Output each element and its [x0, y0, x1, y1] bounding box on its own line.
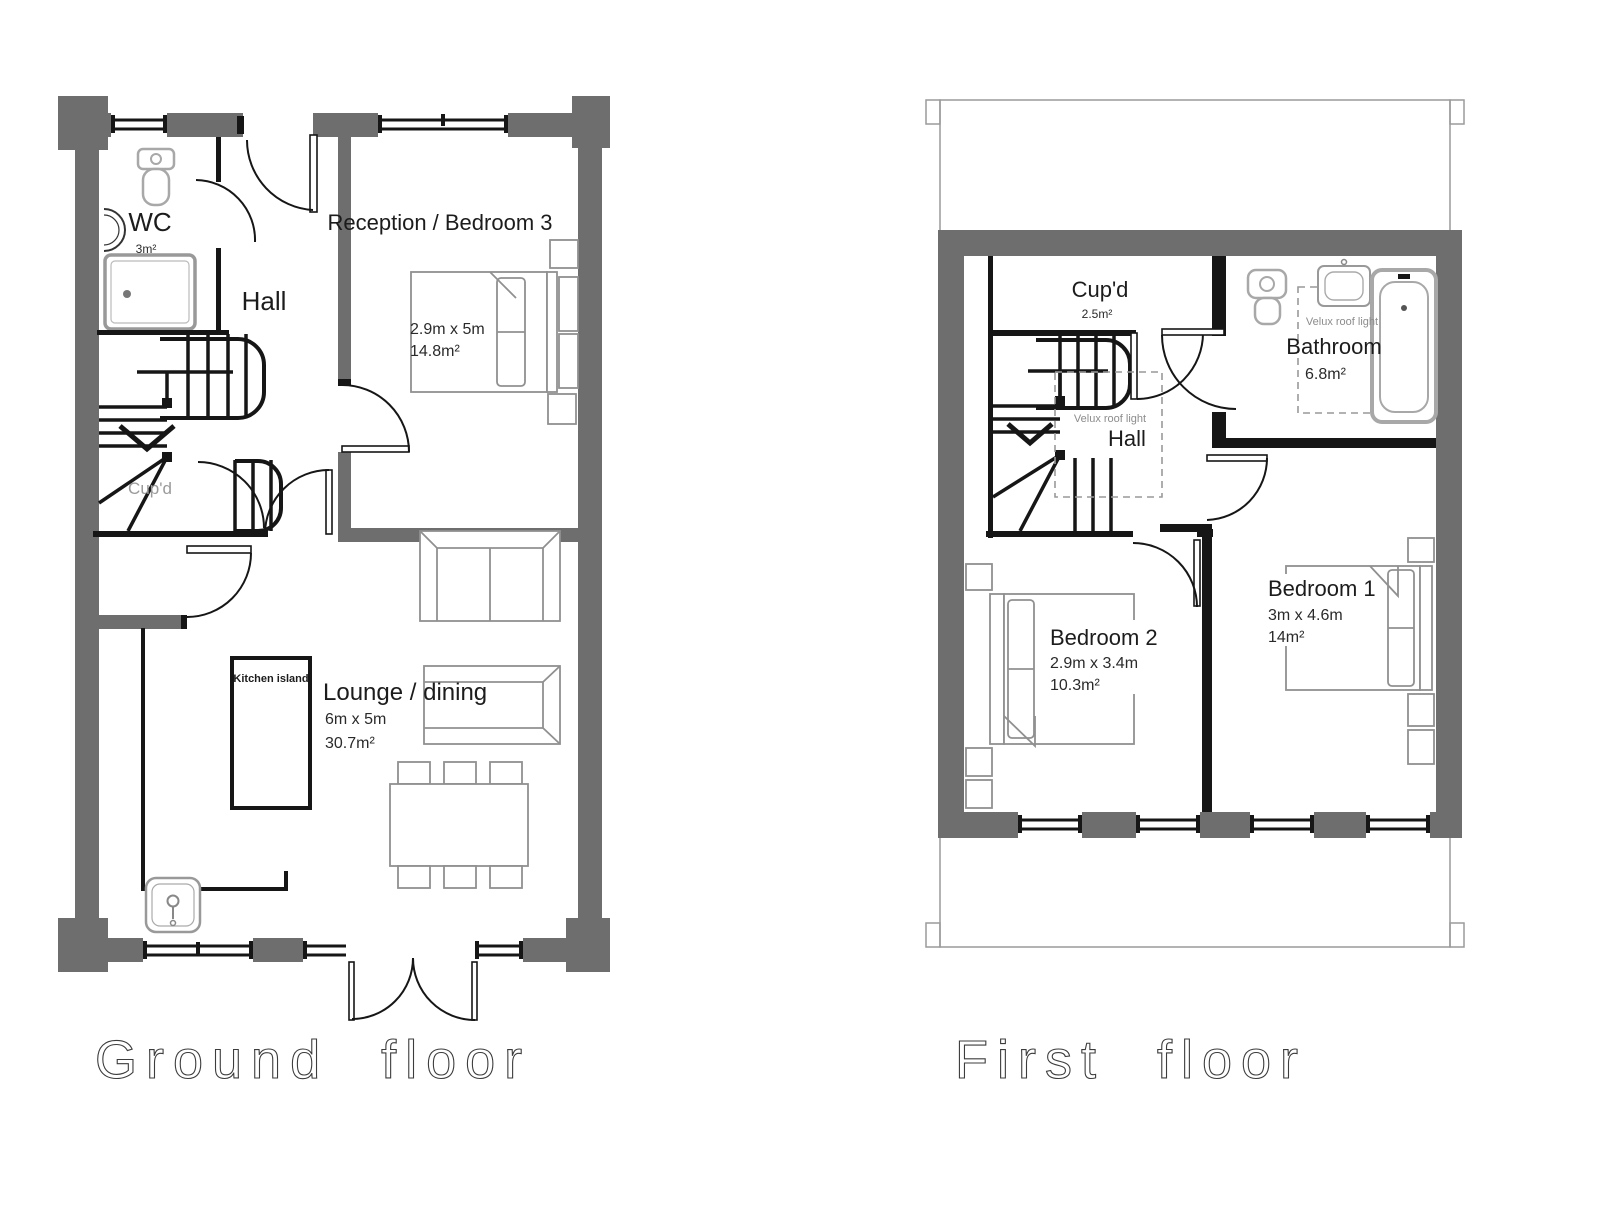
toilet-icon: [1248, 270, 1286, 324]
window: [1250, 810, 1314, 840]
bedroom1-door: [1207, 455, 1267, 520]
window: [1018, 810, 1082, 840]
floorplan-page: WC 3m² Hall Reception / Bedroom 3 2.9m x…: [0, 0, 1609, 1210]
stairs-icon: [93, 330, 281, 537]
wall-pillar: [572, 96, 610, 148]
french-door-opening: [346, 935, 477, 965]
bathroom-door: [1162, 329, 1236, 409]
bathroom-velux-label: Velux roof light: [1306, 316, 1378, 328]
sofa-icon: [420, 531, 560, 621]
bed-icon: [1286, 538, 1434, 764]
bedroom2-area: 10.3m²: [1050, 677, 1100, 694]
wall-pillar: [566, 918, 610, 972]
window: [378, 108, 508, 142]
kitchen-door: [181, 546, 251, 629]
shower-icon: [105, 255, 195, 329]
basin-icon: [104, 209, 125, 251]
basin-icon: [1318, 260, 1370, 307]
wc-area: 3m²: [136, 242, 157, 256]
lounge-label: Lounge / dining: [323, 679, 487, 706]
lounge-dims: 6m x 5m: [325, 711, 386, 728]
kitchen-island-label: Kitchen island: [233, 673, 308, 685]
reception-area: 14.8m²: [410, 343, 460, 360]
ground-floor-title: Ground floor: [95, 1030, 531, 1090]
window: [111, 108, 167, 142]
hall-label: Hall: [1108, 426, 1146, 451]
bathroom-label: Bathroom: [1286, 334, 1381, 359]
sink-icon: [146, 878, 200, 932]
bedroom1-dims: 3m x 4.6m: [1268, 607, 1343, 624]
reception-dims: 2.9m x 5m: [410, 321, 485, 338]
bedroom1-area: 14m²: [1268, 629, 1305, 646]
hall-label: Hall: [242, 286, 287, 316]
bedroom2-door: [1133, 540, 1200, 607]
bedroom1-label: Bedroom 1: [1268, 576, 1376, 601]
lounge-area: 30.7m²: [325, 735, 375, 752]
window: [143, 936, 253, 966]
cupboard-door: [1131, 333, 1203, 399]
front-door-opening: [243, 110, 313, 140]
french-doors: [349, 958, 477, 1020]
wc-door-swing: [196, 180, 255, 242]
ground-floor-plan: WC 3m² Hall Reception / Bedroom 3 2.9m x…: [58, 96, 610, 1090]
cupboard-label: Cup'd: [1072, 277, 1129, 302]
wall-pillar: [58, 918, 108, 972]
wc-fixtures: [104, 149, 195, 329]
first-floor-title: First floor: [955, 1030, 1307, 1090]
window: [1136, 810, 1200, 840]
wc-label: WC: [128, 207, 171, 237]
toilet-icon: [138, 149, 174, 205]
bathroom-area: 6.8m²: [1305, 366, 1347, 383]
window: [303, 936, 351, 966]
reception-label: Reception / Bedroom 3: [327, 210, 552, 235]
dining-table-icon: [390, 762, 528, 888]
cupboard-label: Cup'd: [128, 479, 172, 498]
window: [475, 936, 523, 966]
wall-pillar: [58, 96, 108, 150]
bedroom2-label: Bedroom 2: [1050, 625, 1158, 650]
cupboard-area: 2.5m²: [1082, 307, 1113, 321]
first-floor-plan: Cup'd 2.5m² Velux roof light Hall Velux …: [926, 100, 1464, 1090]
window: [1366, 810, 1430, 840]
bedroom2-dims: 2.9m x 3.4m: [1050, 655, 1138, 672]
floorplan-drawing: WC 3m² Hall Reception / Bedroom 3 2.9m x…: [0, 0, 1609, 1210]
reception-door: [338, 379, 409, 452]
hall-velux-label: Velux roof light: [1074, 413, 1146, 425]
